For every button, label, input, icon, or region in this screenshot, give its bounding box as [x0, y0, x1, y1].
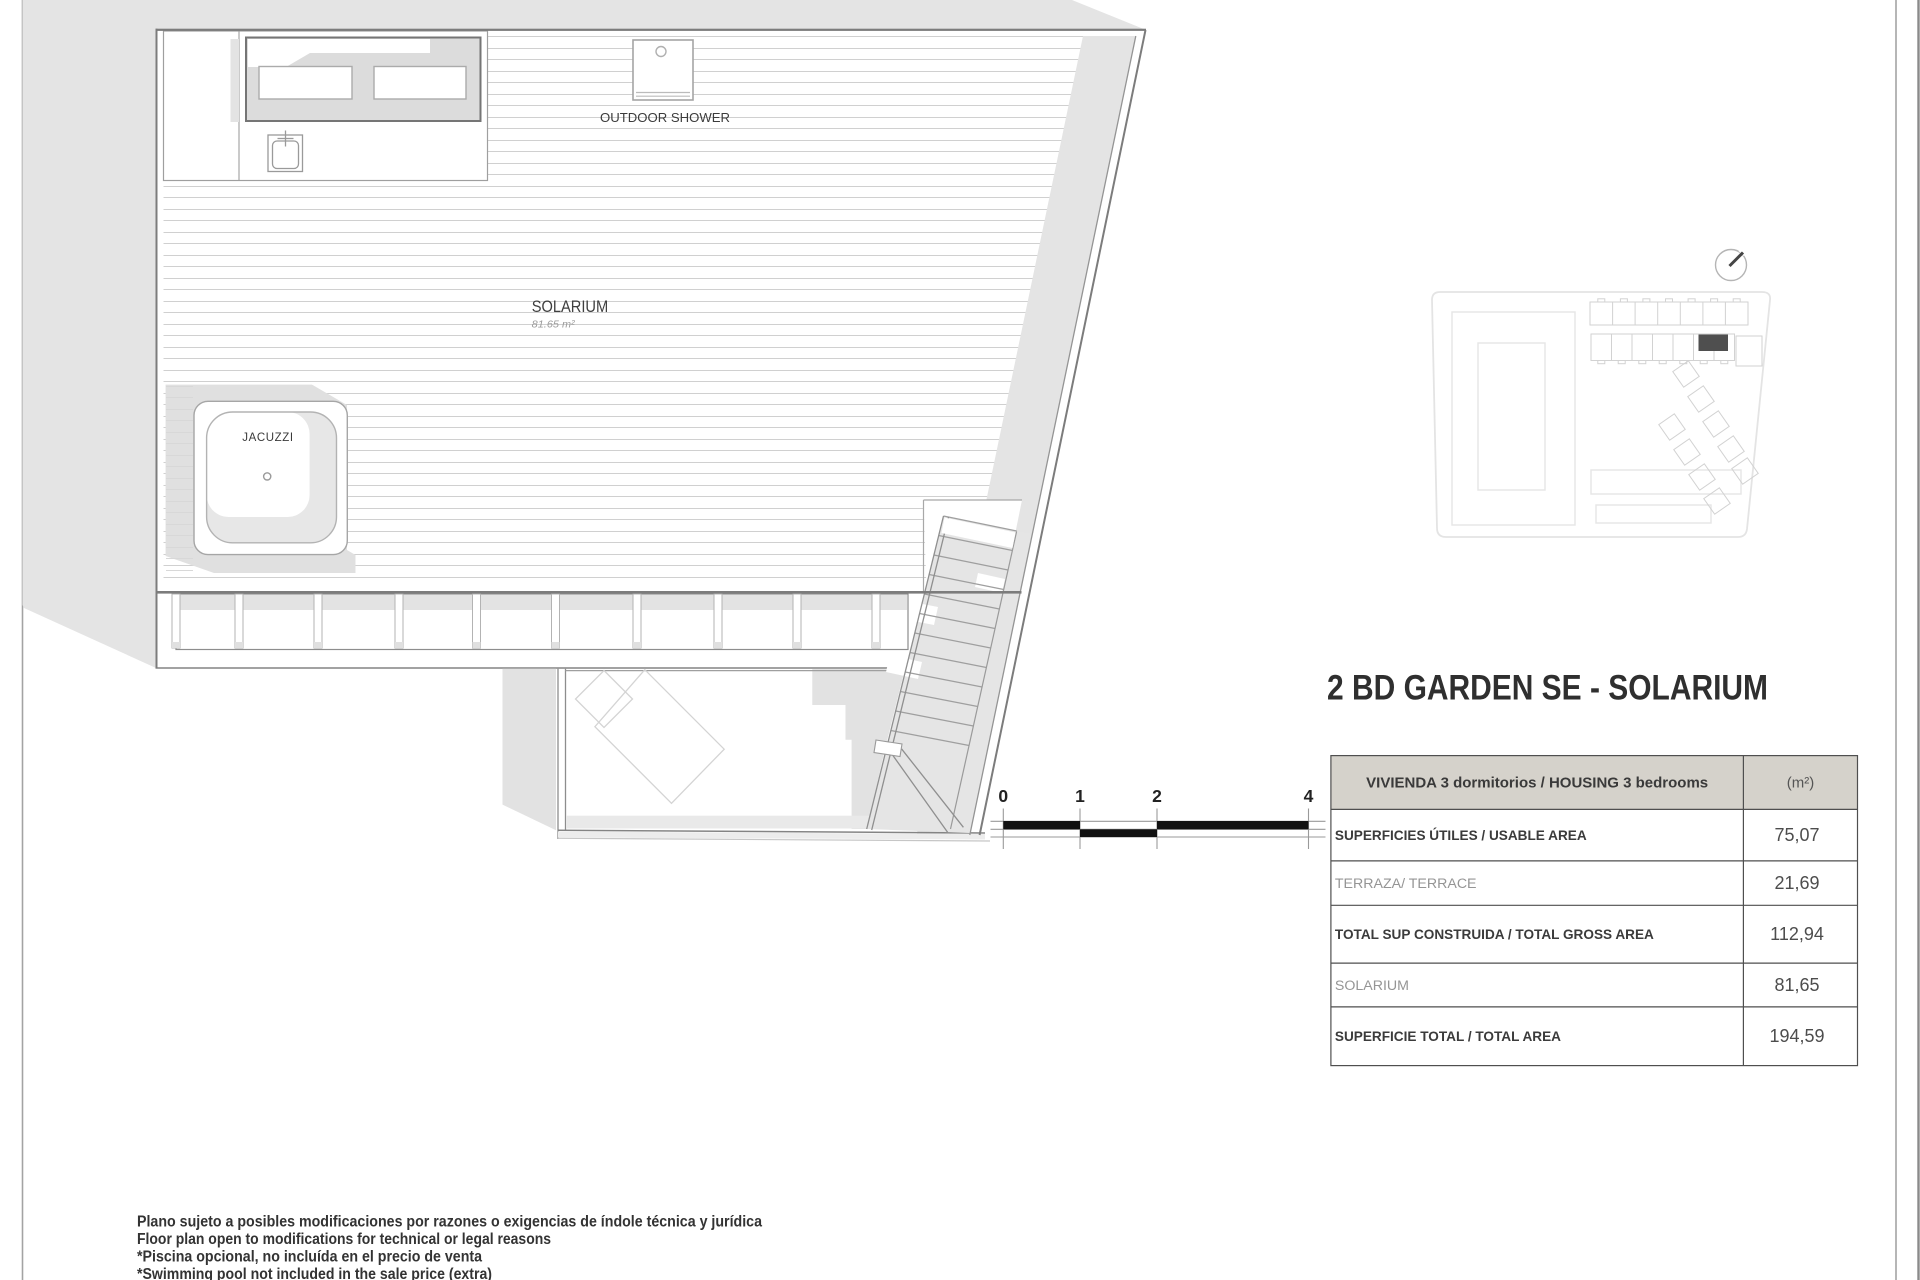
svg-text:0: 0 [998, 786, 1008, 806]
svg-text:TOTAL SUP CONSTRUIDA / TOTAL G: TOTAL SUP CONSTRUIDA / TOTAL GROSS AREA [1335, 927, 1654, 942]
svg-text:2 BD GARDEN SE - SOLARIUM: 2 BD GARDEN SE - SOLARIUM [1327, 669, 1768, 708]
svg-text:OUTDOOR SHOWER: OUTDOOR SHOWER [600, 110, 730, 125]
svg-text:21,69: 21,69 [1774, 873, 1819, 893]
svg-text:SUPERFICIE TOTAL / TOTAL AREA: SUPERFICIE TOTAL / TOTAL AREA [1335, 1029, 1561, 1044]
svg-text:2: 2 [1152, 786, 1162, 806]
svg-text:SOLARIUM: SOLARIUM [532, 297, 609, 316]
svg-text:(m²): (m²) [1787, 775, 1814, 792]
svg-text:*Piscina opcional, no incluída: *Piscina opcional, no incluída en el pre… [137, 1249, 482, 1266]
svg-text:Floor plan open to modificatio: Floor plan open to modifications for tec… [137, 1231, 551, 1248]
svg-text:81,65: 81,65 [1774, 975, 1819, 995]
svg-text:194,59: 194,59 [1769, 1026, 1824, 1046]
svg-text:VIVIENDA 3 dormitorios / HOUSI: VIVIENDA 3 dormitorios / HOUSING 3 bedro… [1366, 775, 1708, 792]
svg-text:112,94: 112,94 [1770, 924, 1824, 944]
svg-text:4: 4 [1304, 786, 1314, 806]
svg-text:Plano sujeto a posibles modifi: Plano sujeto a posibles modificaciones p… [137, 1214, 762, 1231]
svg-text:81.65 m²: 81.65 m² [532, 319, 576, 331]
svg-text:TERRAZA/ TERRACE: TERRAZA/ TERRACE [1335, 876, 1477, 892]
svg-text:SUPERFICIES ÚTILES / USABLE AR: SUPERFICIES ÚTILES / USABLE AREA [1335, 828, 1587, 843]
svg-text:SOLARIUM: SOLARIUM [1335, 978, 1409, 994]
svg-text:75,07: 75,07 [1774, 825, 1819, 845]
svg-text:JACUZZI: JACUZZI [242, 432, 293, 444]
svg-text:*Swimming pool not included in: *Swimming pool not included in the sale … [137, 1266, 492, 1280]
svg-text:1: 1 [1075, 786, 1085, 806]
